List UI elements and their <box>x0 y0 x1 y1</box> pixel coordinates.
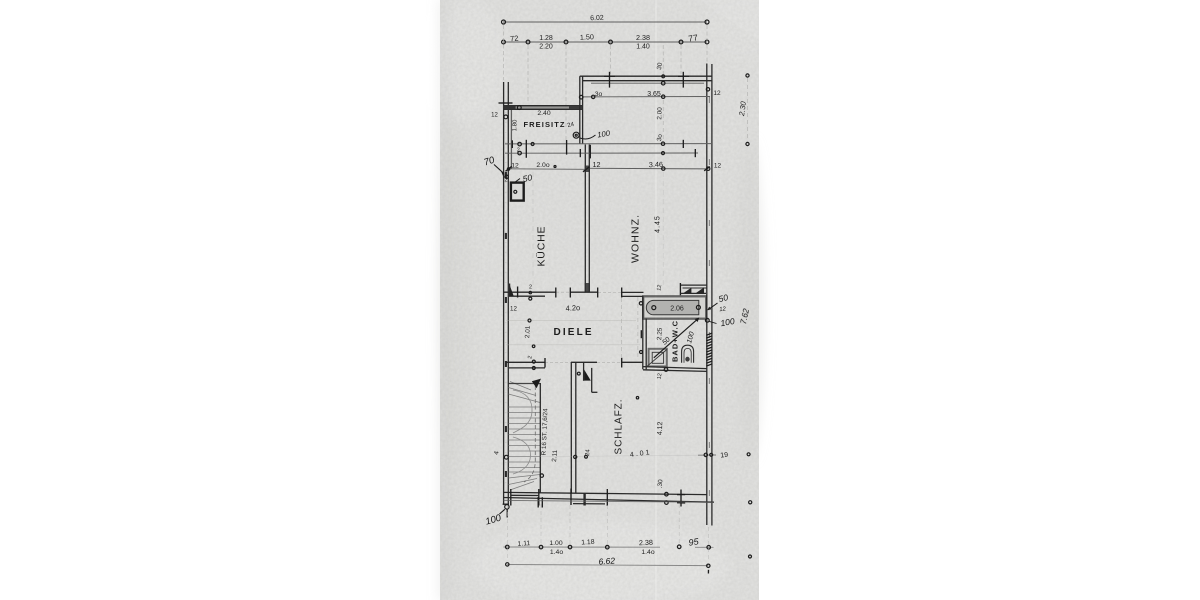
svg-text:12: 12 <box>657 373 664 380</box>
svg-text:12: 12 <box>714 162 722 169</box>
svg-text:3o: 3o <box>595 91 603 98</box>
svg-text:2.11: 2.11 <box>551 449 559 462</box>
svg-text:12: 12 <box>713 90 721 97</box>
svg-text:12: 12 <box>656 284 663 291</box>
svg-text:1.4o: 1.4o <box>641 549 654 556</box>
svg-text:1.18: 1.18 <box>581 539 595 547</box>
svg-text:SCHLAFZ.: SCHLAFZ. <box>614 400 625 455</box>
svg-text:WOHNZ.: WOHNZ. <box>630 215 642 263</box>
svg-text:1.80: 1.80 <box>512 119 518 132</box>
svg-text:1.11: 1.11 <box>517 540 530 548</box>
svg-text:1.40: 1.40 <box>636 44 650 51</box>
svg-text:6.02: 6.02 <box>590 15 604 22</box>
svg-text:4.2o: 4.2o <box>565 303 580 313</box>
svg-text:KÜCHE: KÜCHE <box>536 227 548 267</box>
svg-text:2: 2 <box>517 148 520 154</box>
svg-text:72: 72 <box>510 34 519 44</box>
svg-text:3.46: 3.46 <box>649 160 664 169</box>
svg-text:2.40: 2.40 <box>537 110 550 117</box>
svg-text:2.38: 2.38 <box>636 33 650 42</box>
svg-text:6.62: 6.62 <box>598 555 615 566</box>
svg-text:2.0o: 2.0o <box>536 162 549 169</box>
svg-text:2.01: 2.01 <box>524 325 532 338</box>
svg-text:1.00: 1.00 <box>549 540 562 547</box>
svg-text:FREISITZ: FREISITZ <box>524 120 565 129</box>
svg-text:77: 77 <box>688 32 699 43</box>
svg-text:4.12: 4.12 <box>657 421 664 435</box>
svg-text:2.25: 2.25 <box>656 327 664 340</box>
svg-text:3.65: 3.65 <box>647 91 661 98</box>
svg-text:2.06: 2.06 <box>670 306 684 313</box>
svg-text:.30: .30 <box>657 479 665 489</box>
svg-text:1.4o: 1.4o <box>550 549 563 556</box>
svg-text:4.45: 4.45 <box>655 215 662 233</box>
svg-text:DIELE: DIELE <box>554 327 592 338</box>
svg-text:12: 12 <box>511 163 519 170</box>
svg-text:12: 12 <box>593 160 601 169</box>
svg-text:2.00: 2.00 <box>656 107 663 120</box>
svg-text:2.38: 2.38 <box>639 538 653 547</box>
svg-text:12: 12 <box>491 113 498 119</box>
svg-text:12: 12 <box>510 305 517 312</box>
svg-text:1.50: 1.50 <box>580 32 594 42</box>
svg-text:1.28: 1.28 <box>539 35 553 42</box>
svg-text:19: 19 <box>720 452 728 460</box>
svg-text:2: 2 <box>529 285 532 291</box>
svg-text:2.20: 2.20 <box>539 44 553 51</box>
